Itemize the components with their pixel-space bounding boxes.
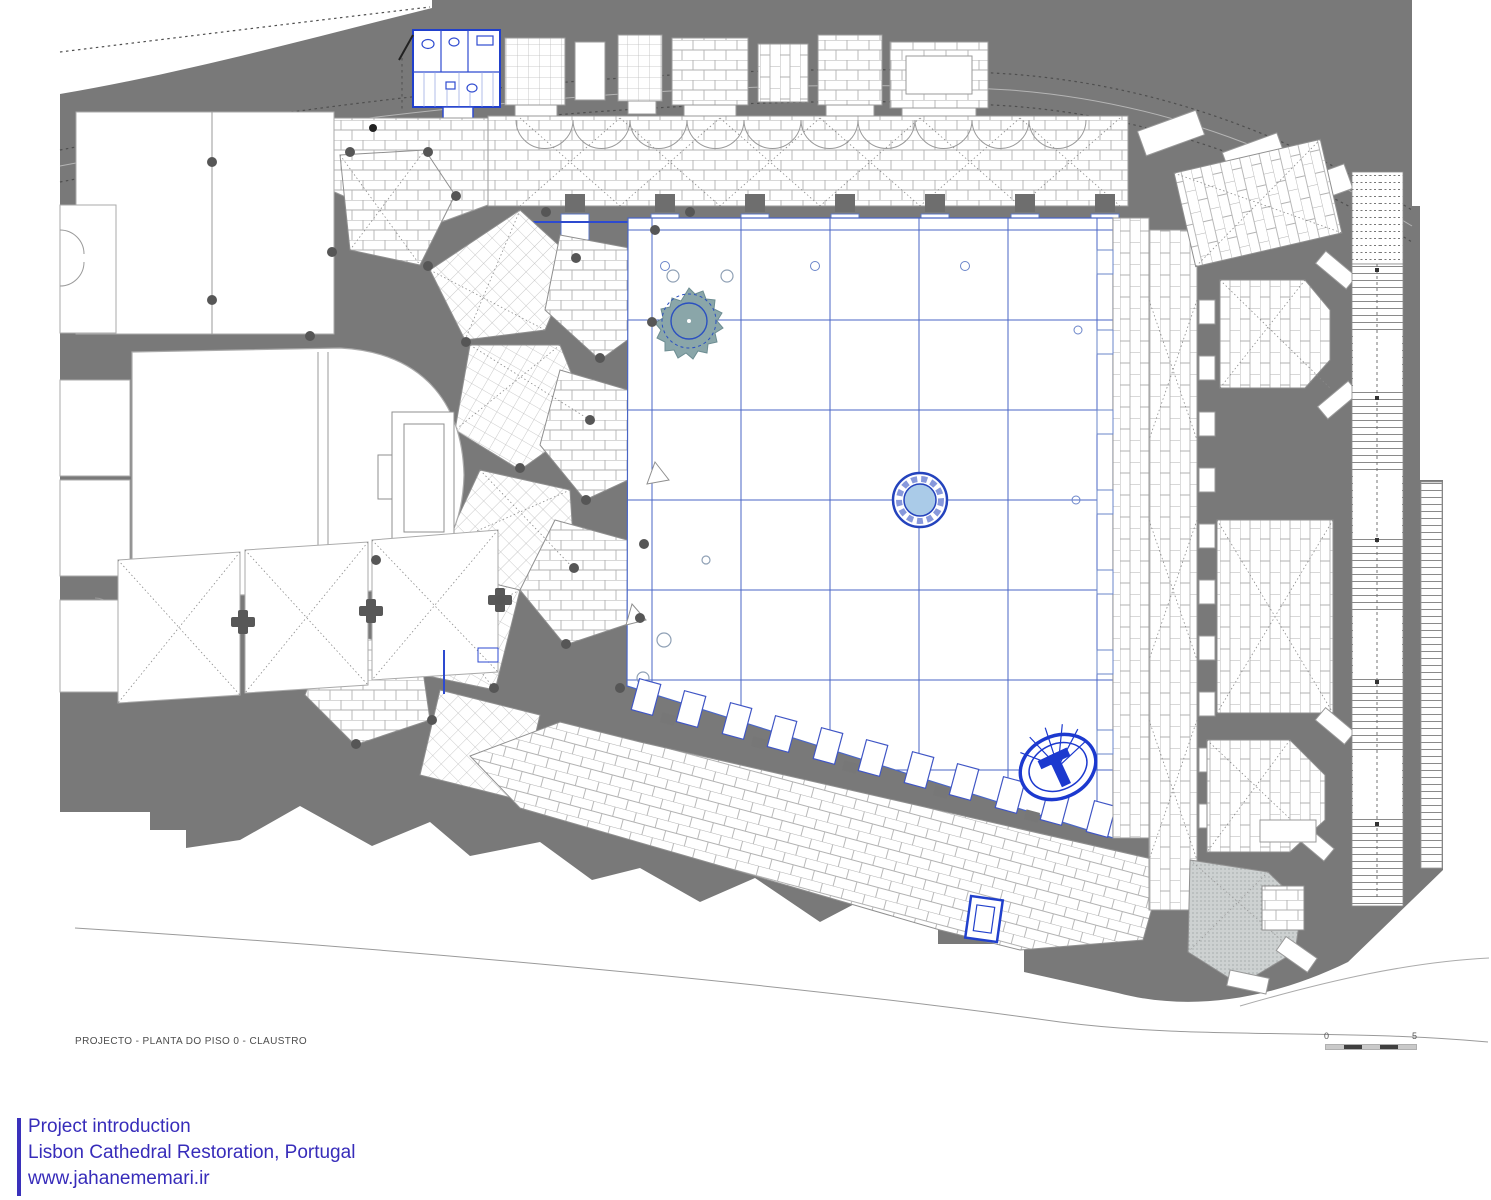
floor-plan-drawing [0,0,1491,1200]
footer-title: Project introduction [28,1114,355,1140]
footer-project-name: Lisbon Cathedral Restoration, Portugal [28,1140,355,1166]
long-staircase [1352,172,1442,906]
central-fountain [893,473,947,527]
scale-bar-segment [1344,1045,1362,1049]
footer-credit-block: Project introduction Lisbon Cathedral Re… [17,1114,355,1192]
scale-bar: 0 5 [1322,1031,1422,1055]
altar-platform [392,412,454,544]
door-fixture [369,124,377,132]
scale-bar-segment [1380,1045,1398,1049]
scale-bar-track [1326,1045,1416,1049]
scale-start-label: 0 [1324,1031,1329,1041]
blue-well-square [965,896,1003,942]
footer-accent-bar [17,1118,21,1196]
plan-sheet: PROJECTO - PLANTA DO PISO 0 - CLAUSTRO 0… [0,0,1491,1200]
footer-website-link[interactable]: www.jahanememari.ir [28,1168,210,1189]
wc-block-blue [399,30,500,119]
scale-end-label: 5 [1412,1031,1417,1041]
secondary-stair-strip [1421,482,1442,868]
drawing-caption: PROJECTO - PLANTA DO PISO 0 - CLAUSTRO [75,1036,307,1047]
east-gallery [1097,218,1215,910]
